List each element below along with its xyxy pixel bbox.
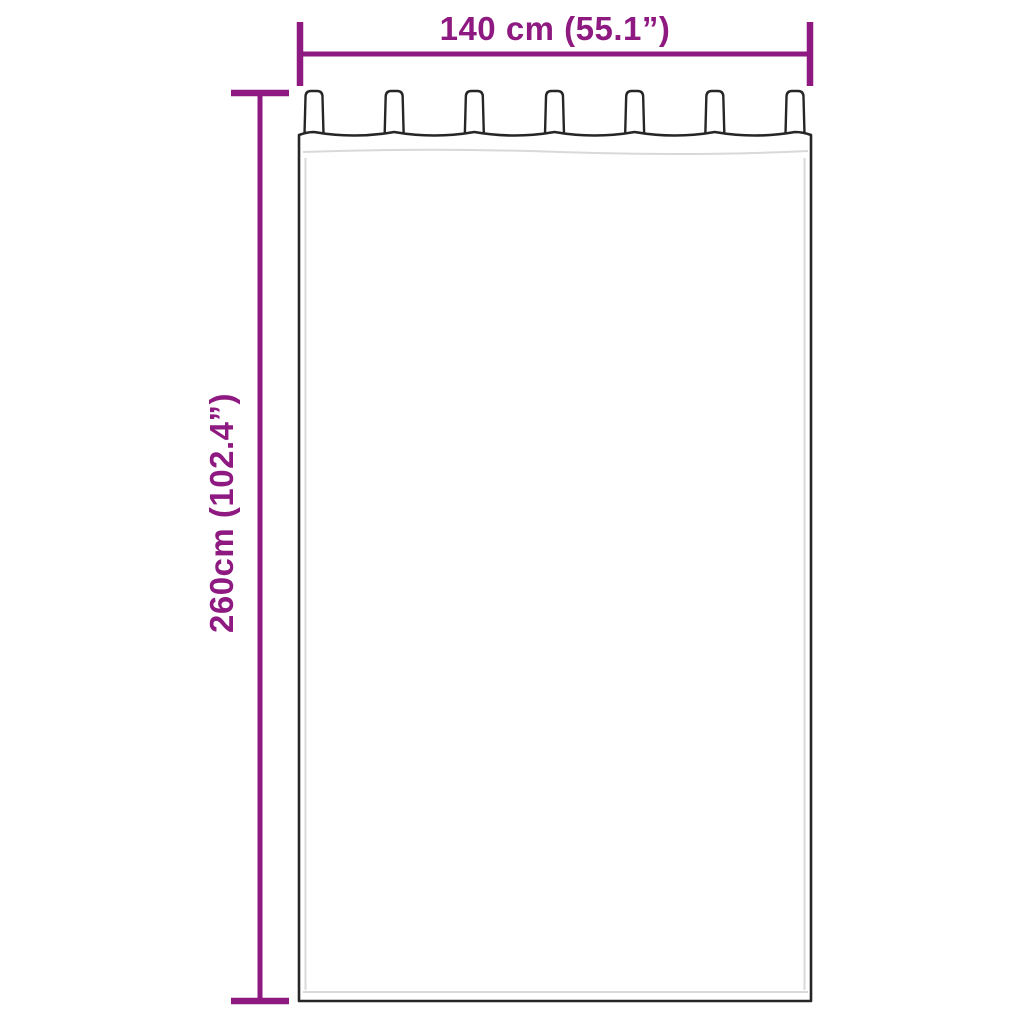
- curtain-tab: [705, 91, 724, 134]
- curtain-tabs: [305, 91, 805, 134]
- curtain-dimension-diagram: 140 cm (55.1”) 260cm (102.4”): [0, 0, 1024, 1024]
- curtain-tab: [625, 91, 644, 134]
- curtain-body: [299, 132, 811, 1001]
- curtain-tab: [305, 91, 324, 134]
- curtain-drawing: [0, 0, 1024, 1024]
- curtain-tab: [545, 91, 564, 134]
- height-dimension-label: 260cm (102.4”): [201, 363, 243, 663]
- curtain-tab: [786, 91, 805, 134]
- curtain-tab: [465, 91, 484, 134]
- curtain-tab: [385, 91, 404, 134]
- width-dimension-label: 140 cm (55.1”): [300, 9, 810, 49]
